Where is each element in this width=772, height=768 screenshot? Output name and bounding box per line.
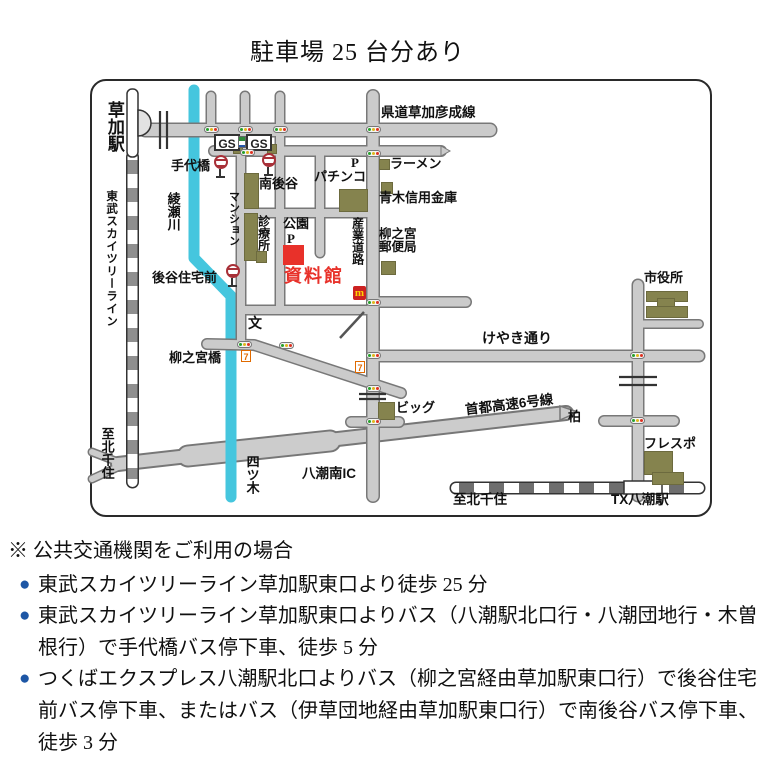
label-big-store: ビッグ <box>396 401 435 415</box>
seven-eleven-icon: 7 <box>355 361 365 373</box>
label-teshiro-bridge: 手代橋 <box>171 159 210 173</box>
label-mansion: マンション <box>227 191 239 246</box>
seven-eleven-icon: 7 <box>241 350 251 362</box>
label-minami-ushiroya: 南後谷 <box>259 177 298 191</box>
label-kashiwa: 柏 <box>568 410 581 424</box>
label-to-kitasenju-bottom: 至北千住 <box>453 493 507 507</box>
label-soka-station: 草加駅 <box>105 101 123 152</box>
bullet-icon: ● <box>19 570 38 602</box>
label-tx-yashio-station: TX八潮駅 <box>611 493 669 507</box>
note-item-bus-tx: ● つくばエクスプレス八潮駅北口よりバス（柳之宮経由草加駅東口行）で後谷住宅前バ… <box>8 664 766 759</box>
bullet-icon: ● <box>19 601 38 664</box>
note-item-walk: ● 東武スカイツリーライン草加駅東口より徒歩 25 分 <box>8 570 766 602</box>
gas-station-1: GS <box>214 134 240 151</box>
label-aoki-bank: 青木信用金庫 <box>379 191 457 205</box>
traffic-light-icon <box>240 149 255 156</box>
minami-ushiroya-building <box>244 173 259 209</box>
traffic-light-icon <box>366 299 381 306</box>
label-prefectural-road: 県道草加彦成線 <box>381 106 476 120</box>
footpath-diagonal <box>340 312 364 338</box>
gas-station-flag-icon <box>238 136 246 148</box>
label-post-office-line2: 郵便局 <box>379 241 417 254</box>
label-yanaginomiya-bridge: 柳之宮橋 <box>169 351 221 365</box>
traffic-light-icon <box>366 126 381 133</box>
label-park: 公園 <box>283 217 309 231</box>
traffic-light-icon <box>366 352 381 359</box>
label-clinic: 診療所 <box>257 215 270 251</box>
traffic-light-icon <box>630 417 645 424</box>
notes-heading: ※ 公共交通機関をご利用の場合 <box>8 536 766 568</box>
bus-stop-icon-ushiroya-jutakumae <box>226 264 238 287</box>
label-keyaki-street: けやき通り <box>482 331 552 346</box>
bullet-icon: ● <box>19 664 38 759</box>
label-frespo: フレスポ <box>644 437 696 451</box>
label-city-hall: 市役所 <box>644 271 683 285</box>
big-store-building <box>378 402 395 420</box>
label-ayase-river: 綾瀬川 <box>166 192 180 231</box>
label-museum: 資料館 <box>284 267 344 286</box>
label-park-parking: P <box>287 232 295 246</box>
label-yashio-minami-ic: 八潮南IC <box>302 467 356 481</box>
tobu-railway <box>127 89 151 482</box>
label-pachinko: パチンコ <box>314 170 366 184</box>
label-tobu-line: 東武スカイツリーライン <box>105 190 117 328</box>
traffic-light-icon <box>237 341 252 348</box>
note-item-bus-teshiro: ● 東武スカイツリーライン草加駅東口よりバス（八潮駅北口行・八潮団地行・木曽根行… <box>8 601 766 664</box>
museum-building <box>283 245 304 265</box>
label-ushiroya-jutakumae: 後谷住宅前 <box>152 271 217 285</box>
access-map-page: 駐車場 25 台分あり <box>0 0 772 768</box>
transit-notes: ※ 公共交通機関をご利用の場合 ● 東武スカイツリーライン草加駅東口より徒歩 2… <box>8 536 766 759</box>
traffic-light-icon <box>204 126 219 133</box>
traffic-light-icon <box>279 342 294 349</box>
label-ramen: ラーメン <box>390 157 441 171</box>
label-sangyo-road: 産業道路 <box>351 217 364 265</box>
school-mark: 文 <box>248 316 262 331</box>
post-office-building <box>381 261 396 275</box>
clinic-annex-building <box>256 251 267 263</box>
frespo-annex-building <box>652 472 684 485</box>
traffic-light-icon <box>238 126 253 133</box>
mcdonalds-icon: m <box>353 286 366 300</box>
label-pachinko-parking: P <box>351 156 359 170</box>
bus-stop-icon-teshiro <box>214 155 226 178</box>
label-yotsugi: 四ツ木 <box>245 455 259 494</box>
ramen-building <box>379 159 390 170</box>
label-to-kitasenju-left: 至北千住 <box>100 427 114 479</box>
city-hall-building-bottom <box>646 306 688 318</box>
traffic-light-icon <box>273 126 288 133</box>
traffic-light-icon <box>366 418 381 425</box>
bus-stop-icon-minami-ushiroya <box>262 153 274 176</box>
traffic-light-icon <box>366 150 381 157</box>
traffic-light-icon <box>630 352 645 359</box>
traffic-light-icon <box>366 385 381 392</box>
pachinko-building <box>339 189 368 212</box>
